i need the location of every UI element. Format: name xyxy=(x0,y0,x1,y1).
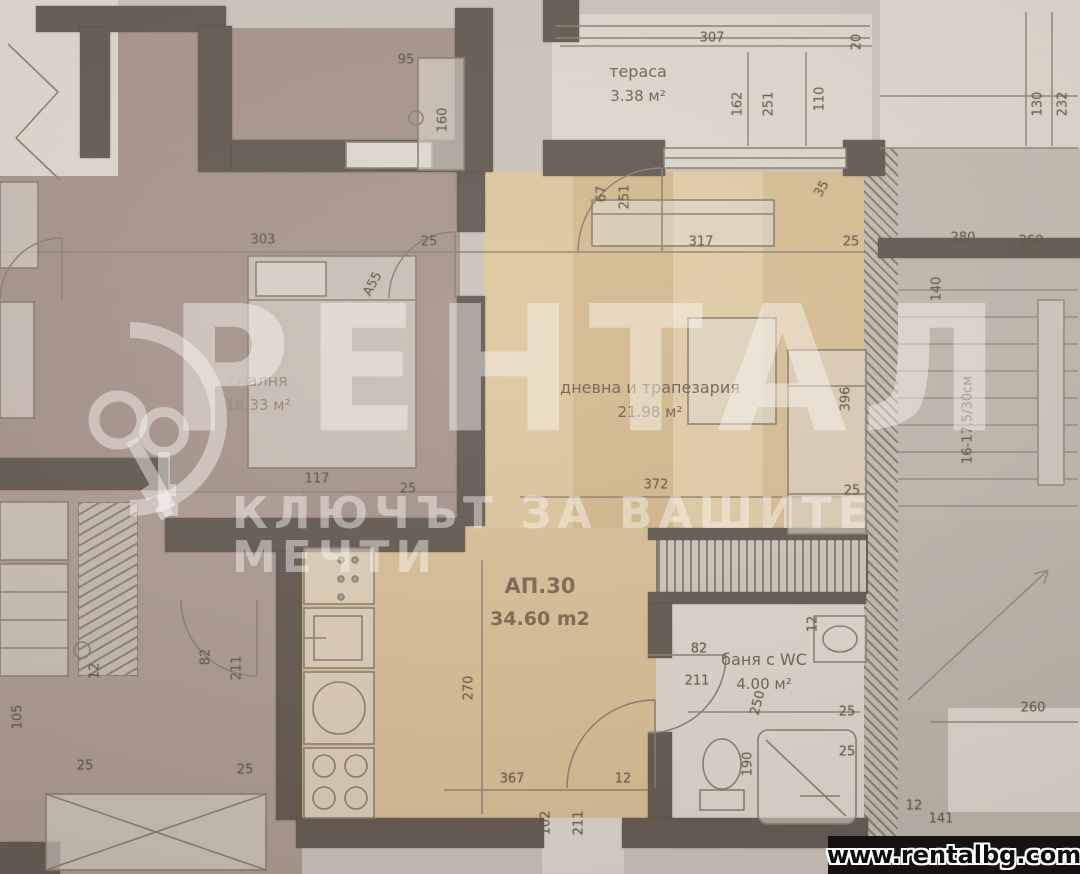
website-bar: www.rentalbg.com xyxy=(828,836,1080,874)
room-labels-layer: тераса3.38 м²спалня18.33 м²дневна и трап… xyxy=(0,0,1080,874)
room-area: 4.00 м² xyxy=(721,673,807,696)
room-name: баня с WC xyxy=(721,648,807,673)
apartment-id: АП.30 xyxy=(490,570,590,604)
room-label-living-dining: дневна и трапезария21.98 м² xyxy=(560,376,740,424)
apartment-label: АП.30 34.60 m2 xyxy=(490,570,590,634)
floorplan-photo: 3072016225111013023295160672513172535280… xyxy=(0,0,1080,874)
room-label-bedroom: спалня18.33 м² xyxy=(225,369,290,417)
room-label-terrace: тераса3.38 м² xyxy=(609,60,667,108)
room-name: дневна и трапезария xyxy=(560,376,740,401)
room-area: 18.33 м² xyxy=(225,394,290,417)
room-name: тераса xyxy=(609,60,667,85)
apartment-area: 34.60 m2 xyxy=(490,604,590,634)
room-name: спалня xyxy=(225,369,290,394)
website-url: www.rentalbg.com xyxy=(827,841,1080,869)
room-label-bathroom: баня с WC4.00 м² xyxy=(721,648,807,696)
room-area: 3.38 м² xyxy=(609,85,667,108)
room-area: 21.98 м² xyxy=(560,401,740,424)
